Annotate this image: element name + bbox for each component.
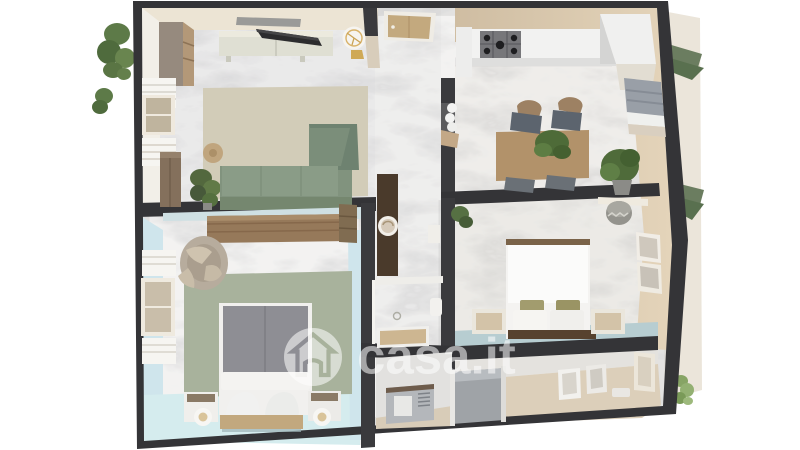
svg-text:casa.it: casa.it	[357, 328, 516, 385]
